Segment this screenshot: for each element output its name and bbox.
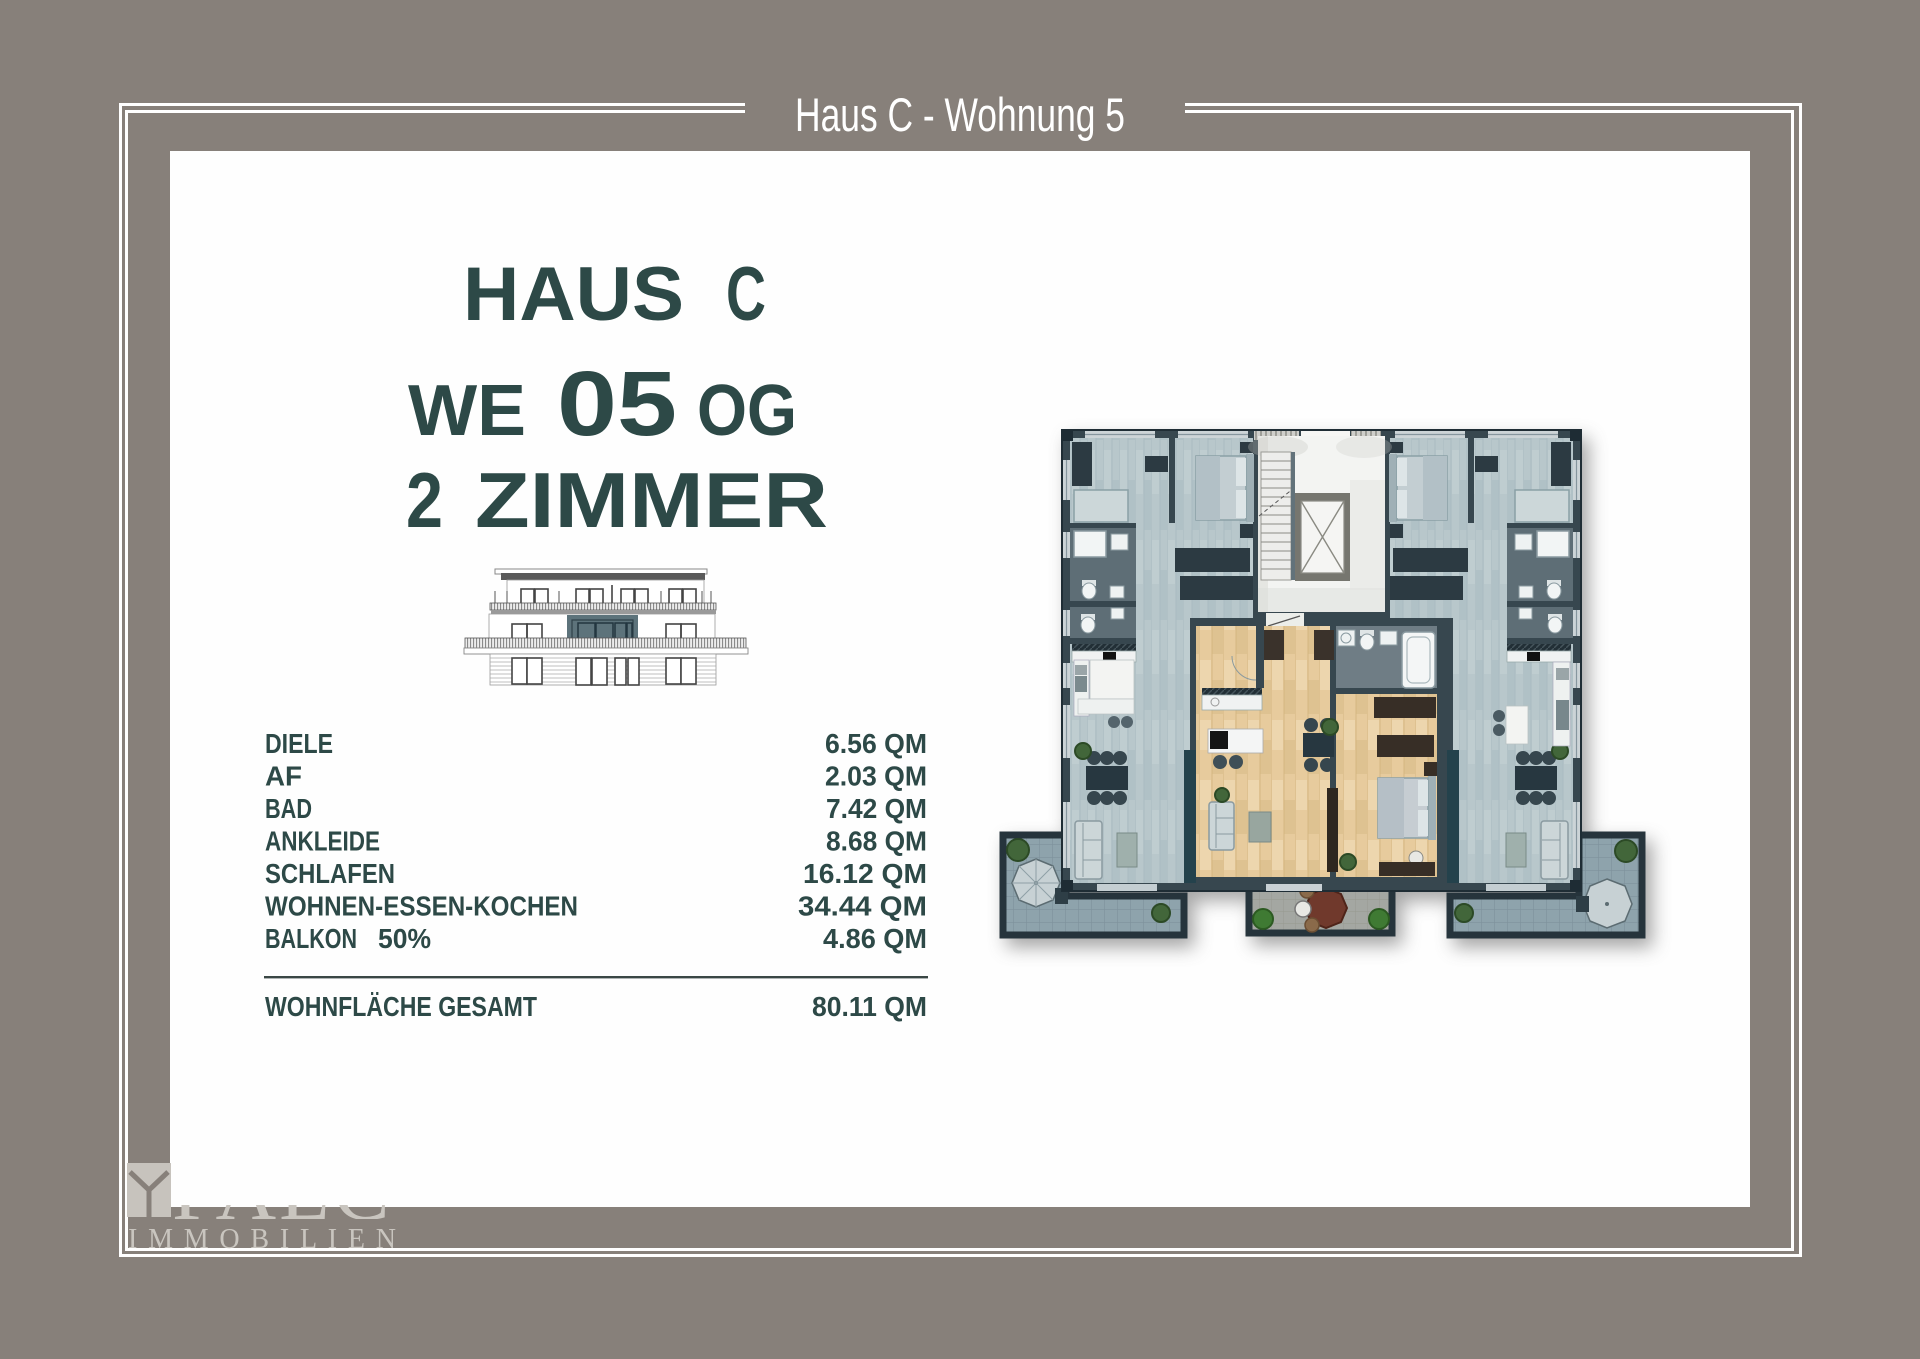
svg-text:WE05OG: WE05OG — [408, 353, 797, 455]
svg-text:DIELE6.56 QM: DIELE6.56 QM — [265, 728, 927, 759]
svg-text:WOHNFLÄCHE GESAMT80.11 QM: WOHNFLÄCHE GESAMT80.11 QM — [265, 991, 927, 1022]
svg-text:BAD7.42 QM: BAD7.42 QM — [265, 793, 927, 824]
svg-text:SCHLAFEN16.12 QM: SCHLAFEN16.12 QM — [265, 858, 927, 889]
svg-text:ANKLEIDE8.68 QM: ANKLEIDE8.68 QM — [265, 826, 927, 857]
svg-text:BALKON50%4.86 QM: BALKON50%4.86 QM — [265, 923, 927, 954]
svg-text:IMMOBILIEN: IMMOBILIEN — [128, 1224, 396, 1255]
svg-text:WOHNEN-ESSEN-KOCHEN34.44 QM: WOHNEN-ESSEN-KOCHEN34.44 QM — [265, 891, 927, 922]
svg-text:HAUSC: HAUSC — [463, 252, 766, 337]
svg-text:AF2.03 QM: AF2.03 QM — [265, 761, 927, 792]
svg-text:2ZIMMER: 2ZIMMER — [406, 456, 828, 544]
